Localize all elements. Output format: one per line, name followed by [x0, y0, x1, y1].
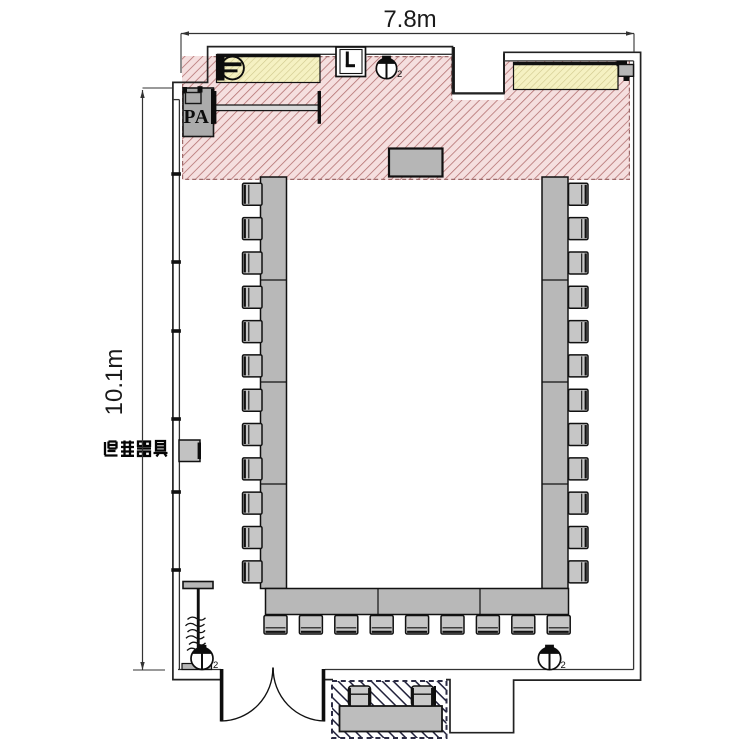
svg-text:PA: PA	[184, 107, 210, 128]
svg-text:2: 2	[397, 69, 402, 80]
svg-text:10.1m: 10.1m	[101, 349, 128, 416]
svg-text:2: 2	[561, 660, 566, 671]
svg-text:7.8m: 7.8m	[383, 6, 436, 33]
svg-text:2: 2	[213, 660, 218, 671]
